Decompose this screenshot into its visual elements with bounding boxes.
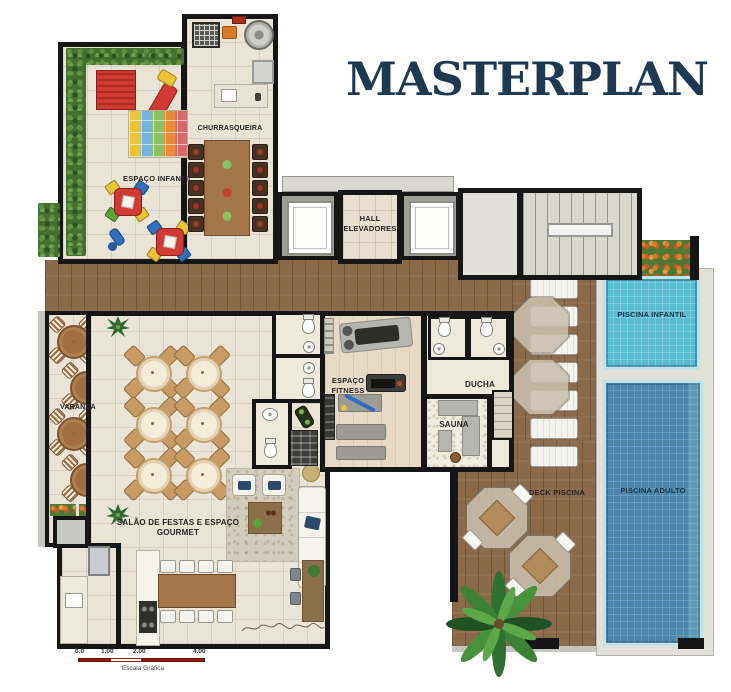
bbq-dining-table bbox=[204, 140, 250, 236]
sink-icon bbox=[303, 341, 315, 353]
elevator bbox=[278, 192, 338, 260]
dining-table-group bbox=[176, 448, 228, 500]
table bbox=[136, 356, 172, 392]
table-decor bbox=[266, 509, 276, 517]
stair-landing-rail bbox=[547, 223, 613, 237]
floor-plan: ESPAÇO INFANTIL CHURRASQUEIRA HALL ELEVA… bbox=[0, 0, 731, 692]
kitchen-counter bbox=[60, 576, 88, 644]
kids-table-group bbox=[146, 218, 192, 264]
stool bbox=[290, 592, 301, 605]
sink-icon bbox=[493, 343, 505, 355]
chair bbox=[160, 560, 176, 573]
weight-plate bbox=[342, 325, 353, 336]
table bbox=[136, 407, 172, 443]
sauna-bench bbox=[438, 430, 452, 452]
terrace-edge bbox=[38, 311, 45, 547]
coffee-table bbox=[248, 502, 282, 534]
dining-table-group bbox=[126, 346, 178, 398]
scale-bar: 0.0 1.00 2.00 4.00 Escala Gráfica bbox=[78, 648, 208, 674]
room-label-piscina-infantil: PISCINA INFANTIL bbox=[607, 310, 697, 320]
table bbox=[186, 407, 222, 443]
sun-lounger bbox=[530, 446, 578, 467]
table bbox=[186, 458, 222, 494]
sun-lounger bbox=[530, 278, 578, 299]
pillow bbox=[268, 481, 281, 490]
stool bbox=[290, 568, 301, 581]
table bbox=[186, 356, 222, 392]
weight-rack bbox=[290, 430, 318, 466]
sauna-bucket bbox=[450, 452, 461, 463]
sauna-bench bbox=[438, 400, 478, 416]
counter-item bbox=[255, 93, 261, 101]
kids-table bbox=[156, 228, 184, 256]
room-label-espaco-infantil: ESPAÇO INFANTIL bbox=[118, 174, 198, 184]
chair bbox=[179, 610, 195, 623]
pillow bbox=[238, 481, 251, 490]
wall-bars bbox=[324, 318, 334, 354]
umbrella bbox=[512, 358, 570, 416]
wall-segment bbox=[678, 638, 704, 649]
bbq-chair bbox=[252, 216, 268, 232]
chair bbox=[198, 560, 214, 573]
artist-signature bbox=[240, 620, 326, 636]
hedge-strip bbox=[66, 48, 184, 65]
room-label-espaco-fitness: ESPAÇO FITNESS bbox=[324, 376, 372, 396]
alphabet-play-mat bbox=[128, 110, 188, 158]
kids-toy-wheel bbox=[108, 242, 117, 251]
bbq-chair bbox=[252, 162, 268, 178]
pillow bbox=[304, 516, 321, 531]
dumbbell-rack bbox=[324, 394, 335, 440]
plant-pot bbox=[253, 519, 262, 528]
vent bbox=[232, 16, 246, 24]
chair bbox=[179, 560, 195, 573]
weight-plate bbox=[343, 339, 354, 350]
sink-basin bbox=[65, 593, 83, 608]
pool-access-steps bbox=[492, 390, 514, 440]
armchair bbox=[262, 474, 286, 496]
pool-adulto bbox=[603, 380, 703, 646]
treadmill bbox=[366, 374, 406, 392]
scale-tick: 4.00 bbox=[193, 648, 206, 655]
counter-sink bbox=[214, 84, 268, 108]
side-table bbox=[302, 464, 320, 482]
sink-basin bbox=[221, 89, 237, 102]
chair bbox=[217, 610, 233, 623]
kids-table-group bbox=[104, 178, 150, 224]
table bbox=[136, 458, 172, 494]
dining-table-group bbox=[126, 448, 178, 500]
firewood-box bbox=[222, 26, 237, 39]
elevator bbox=[400, 192, 460, 260]
dining-table-group bbox=[176, 397, 228, 449]
gym-bench bbox=[354, 325, 399, 346]
armchair bbox=[232, 474, 256, 496]
bbq-chair bbox=[252, 144, 268, 160]
chair bbox=[198, 610, 214, 623]
sideboard bbox=[302, 560, 324, 622]
page-title: MASTERPLAN bbox=[346, 52, 726, 108]
barbell bbox=[344, 393, 376, 412]
play-mat-red bbox=[96, 70, 136, 110]
palm-tree bbox=[443, 568, 555, 680]
treadmill-light bbox=[397, 381, 402, 386]
bbq-chair bbox=[252, 180, 268, 196]
chair bbox=[217, 560, 233, 573]
scale-tick: 0.0 bbox=[75, 648, 84, 655]
round-grill bbox=[244, 20, 274, 50]
exercise-mat bbox=[338, 394, 382, 412]
toilet-icon bbox=[264, 442, 277, 458]
dining-table-group bbox=[126, 397, 178, 449]
dining-table-group bbox=[176, 346, 228, 398]
toilet-icon bbox=[302, 318, 315, 334]
kids-table bbox=[114, 188, 142, 216]
exercise-mat bbox=[336, 424, 386, 440]
bbq-chair bbox=[188, 198, 204, 214]
scale-segment bbox=[78, 658, 110, 662]
kitchen-island bbox=[136, 550, 160, 646]
fridge bbox=[88, 546, 110, 576]
stove bbox=[139, 601, 157, 633]
scale-tick: 1.00 bbox=[101, 648, 114, 655]
gourmet-table bbox=[158, 574, 236, 608]
plant-pot bbox=[308, 565, 320, 577]
sink-icon bbox=[262, 408, 278, 421]
stair-block bbox=[518, 188, 642, 280]
sink-icon bbox=[433, 343, 445, 355]
pool-lane-highlight bbox=[688, 383, 700, 643]
toilet-icon bbox=[302, 382, 315, 398]
hedge-strip bbox=[66, 48, 86, 256]
service-room bbox=[458, 188, 522, 280]
scale-tick: 2.00 bbox=[133, 648, 146, 655]
room-label-churrasqueira: CHURRASQUEIRA bbox=[186, 124, 274, 133]
room-label-salao-festas: SALÃO DE FESTAS E ESPAÇO GOURMET bbox=[115, 518, 241, 539]
room-label-piscina-adulto: PISCINA ADULTO bbox=[608, 486, 698, 496]
bbq-chair bbox=[188, 144, 204, 160]
storage-room bbox=[53, 516, 89, 548]
pool-infantil bbox=[603, 276, 700, 370]
sun-lounger bbox=[530, 418, 578, 439]
room-label-varanda: VARANDA bbox=[53, 403, 103, 412]
hedge-strip bbox=[38, 203, 60, 257]
room-label-sauna: SAUNA bbox=[430, 420, 478, 430]
chair bbox=[160, 610, 176, 623]
room-label-ducha: DUCHA bbox=[452, 380, 508, 390]
appliance bbox=[252, 60, 274, 84]
room-label-deck-piscina: DECK PISCINA bbox=[528, 488, 586, 498]
room-label-hall-elevadores: HALL ELEVADORES bbox=[339, 214, 401, 234]
scale-segment bbox=[142, 658, 205, 662]
planter-box bbox=[50, 504, 76, 516]
toilet-icon bbox=[438, 321, 451, 337]
exercise-mat bbox=[336, 446, 386, 460]
toilet-icon bbox=[480, 321, 493, 337]
scale-segment bbox=[110, 658, 142, 662]
treadmill-belt bbox=[371, 379, 395, 388]
bbq-chair bbox=[188, 216, 204, 232]
sink-icon bbox=[303, 362, 315, 374]
dumbbell bbox=[341, 405, 347, 411]
flower-bed bbox=[640, 240, 692, 276]
bbq-chair bbox=[252, 198, 268, 214]
scale-label: Escala Gráfica bbox=[78, 665, 208, 672]
umbrella bbox=[512, 296, 570, 354]
wall-segment bbox=[690, 236, 699, 280]
grill bbox=[192, 22, 220, 48]
